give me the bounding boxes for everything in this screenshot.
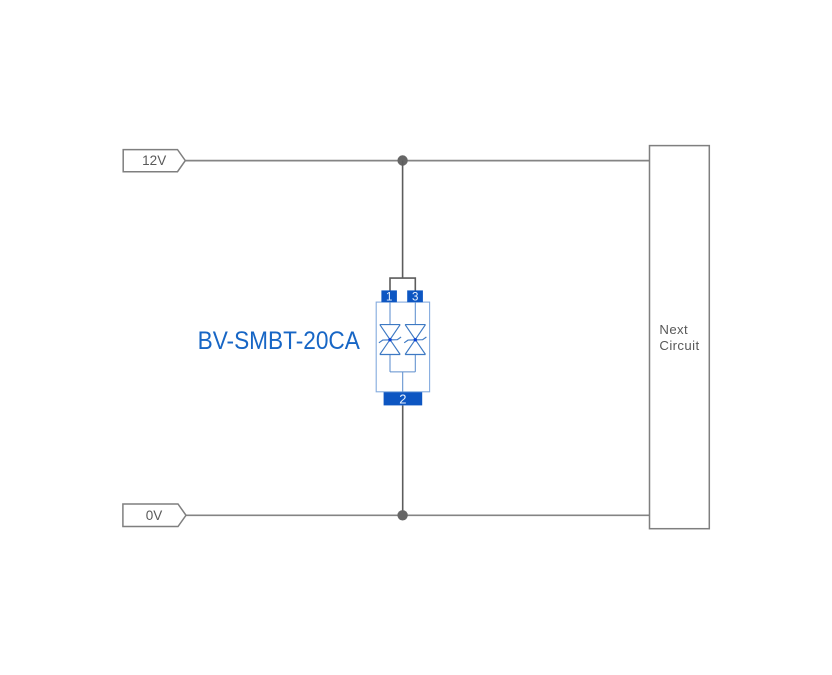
svg-text:12V: 12V xyxy=(142,153,166,168)
svg-text:3: 3 xyxy=(412,292,418,304)
svg-text:Next: Next xyxy=(659,322,688,337)
svg-text:1: 1 xyxy=(386,292,392,304)
svg-text:BV-SMBT-20CA: BV-SMBT-20CA xyxy=(198,327,361,355)
svg-text:Circuit: Circuit xyxy=(659,338,699,353)
svg-text:2: 2 xyxy=(399,392,406,407)
svg-text:0V: 0V xyxy=(146,508,163,523)
